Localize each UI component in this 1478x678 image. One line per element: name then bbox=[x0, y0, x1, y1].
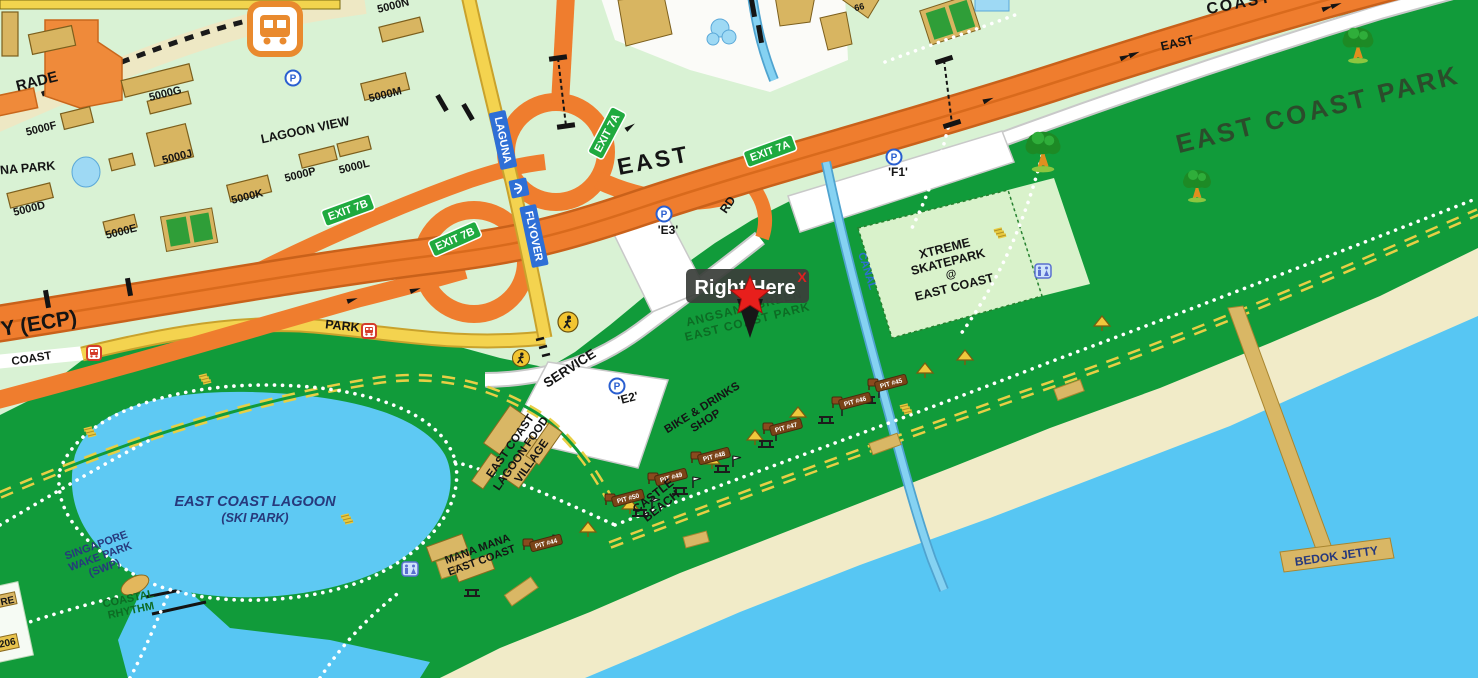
park-map: PIT #45 PIT #46 PIT #47 PIT #48 PIT #49 … bbox=[0, 0, 1478, 678]
parking-letter: P bbox=[614, 382, 621, 393]
svg-text:(SKI PARK): (SKI PARK) bbox=[221, 511, 288, 525]
bus-stop-icon bbox=[362, 324, 376, 338]
carpark-label-e3: 'E3' bbox=[658, 223, 679, 237]
parking-letter: P bbox=[891, 153, 898, 164]
hiking-trail-icon bbox=[558, 312, 578, 332]
toilet-icon bbox=[402, 562, 418, 576]
map-canvas: PIT #45 PIT #46 PIT #47 PIT #48 PIT #49 … bbox=[0, 0, 1478, 678]
bus-stop-icon bbox=[87, 346, 101, 360]
bus-interchange-icon bbox=[250, 4, 300, 54]
carpark-label-f1: 'F1' bbox=[888, 165, 908, 179]
svg-text:EAST COAST LAGOON: EAST COAST LAGOON bbox=[174, 494, 336, 510]
parking-letter: P bbox=[290, 74, 297, 85]
marker-close-button[interactable]: X bbox=[797, 269, 807, 285]
pond bbox=[72, 157, 100, 187]
toilet-icon bbox=[1035, 264, 1051, 278]
hiking-trail-icon bbox=[513, 350, 530, 367]
parking-letter: P bbox=[661, 210, 668, 221]
